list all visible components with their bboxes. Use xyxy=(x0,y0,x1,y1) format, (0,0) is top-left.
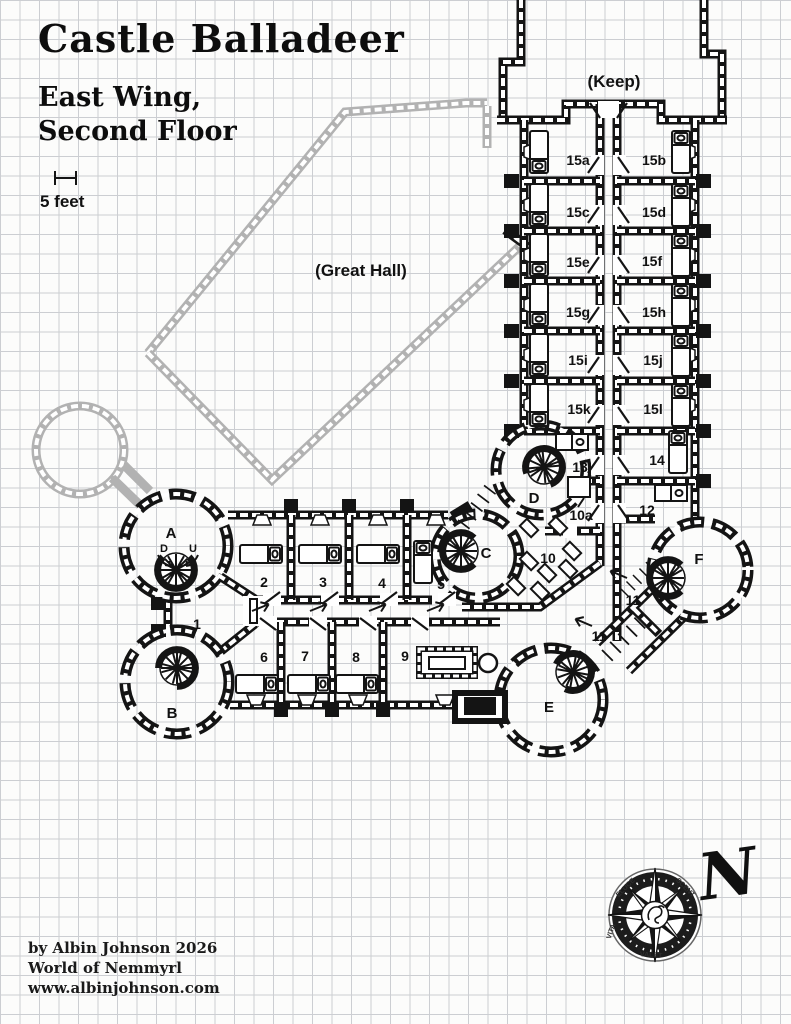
bed-icon-15b xyxy=(672,131,690,173)
tower-c xyxy=(435,514,519,598)
spiral-stair-icon-f xyxy=(650,560,685,597)
bed-icon-15h xyxy=(672,284,690,326)
dresser-icon-12 xyxy=(655,485,687,501)
credit-line2: World of Nemmyrl xyxy=(27,959,182,977)
keep-label: (Keep) xyxy=(588,72,641,91)
hearth-icon xyxy=(464,697,496,715)
castle-map: ELUCESCENTVITAVALET Castle Balladeer Eas… xyxy=(0,0,791,1024)
room-label-15c: 15c xyxy=(566,204,590,220)
spiral-stair-icon-c xyxy=(443,533,478,570)
bed-icon-15g xyxy=(530,284,548,326)
room-label-12: 12 xyxy=(639,502,655,518)
room-label-15d: 15d xyxy=(642,204,666,220)
room-label-15i: 15i xyxy=(568,352,587,368)
room-label-10: 10 xyxy=(540,550,556,566)
room-label-15l: 15l xyxy=(643,401,662,417)
bed-icon-15f xyxy=(672,234,690,276)
room-label-13: 13 xyxy=(572,459,588,475)
stair-mark-d: D xyxy=(160,543,168,555)
room-label-2: 2 xyxy=(260,574,268,590)
tower-label-d: D xyxy=(529,490,540,507)
bed-icon-8 xyxy=(336,675,378,693)
room-label-15j: 15j xyxy=(643,352,662,368)
bed-icon-2 xyxy=(240,545,282,563)
bed-icon-7 xyxy=(288,675,330,693)
subtitle-line2: Second Floor xyxy=(38,116,237,147)
bed-icon-5 xyxy=(414,541,432,583)
scale-bar xyxy=(55,171,76,185)
closet-10a-pointer xyxy=(578,498,584,507)
tower-a xyxy=(124,494,228,598)
bed-icon-15l xyxy=(672,384,690,426)
stairs-corridor11-lower xyxy=(602,618,645,661)
closet-10a xyxy=(568,477,590,497)
tower-label-a: A xyxy=(166,525,177,542)
subtitle-line1: East Wing, xyxy=(38,82,201,113)
page-title: Castle Balladeer xyxy=(38,16,405,61)
room-label-14: 14 xyxy=(649,452,665,468)
scale-label: 5 feet xyxy=(40,192,85,211)
room-label-15h: 15h xyxy=(642,304,666,320)
stair-mark-u: U xyxy=(189,543,197,555)
keep-right-tower-wall xyxy=(704,0,722,119)
castle-map-page: ELUCESCENTVITAVALET Castle Balladeer Eas… xyxy=(0,0,791,1024)
long-table-top xyxy=(429,657,465,669)
bed-icon-6 xyxy=(236,675,278,693)
tower-label-e: E xyxy=(544,699,554,716)
bed-icon-14 xyxy=(669,431,687,473)
room-label-3: 3 xyxy=(319,574,327,590)
bed-icon-4 xyxy=(357,545,399,563)
tower-f xyxy=(650,522,748,618)
room-label-11: 11 xyxy=(592,628,607,644)
room-label-15a: 15a xyxy=(566,152,590,168)
north-indicator: N xyxy=(692,833,765,916)
dresser-icon-13 xyxy=(556,434,588,450)
room-label-8: 8 xyxy=(352,649,360,665)
great-hall-label: (Great Hall) xyxy=(315,261,407,280)
compass-medallion xyxy=(642,902,669,929)
bed-icon-15i xyxy=(530,334,548,376)
room-label-5: 5 xyxy=(437,576,445,592)
bed-icon-15a xyxy=(530,131,548,173)
room-label-15b: 15b xyxy=(642,152,666,168)
room-label-15k: 15k xyxy=(567,401,591,417)
credit-line3: www.albinjohnson.com xyxy=(27,979,220,997)
room-label-4: 4 xyxy=(378,575,386,591)
credit-line1: by Albin Johnson 2026 xyxy=(28,939,217,957)
keep-left-tower-wall xyxy=(503,0,521,119)
bed-icon-15d xyxy=(672,184,690,226)
compass-rose: ELUCESCENTVITAVALET xyxy=(606,868,702,962)
room-label-9: 9 xyxy=(401,648,409,664)
room-label-1: 1 xyxy=(193,616,201,632)
tower-label-c: C xyxy=(481,545,492,562)
bed-icon-15j xyxy=(672,334,690,376)
stool-icon xyxy=(479,654,497,672)
room-label-15f: 15f xyxy=(642,253,663,269)
spiral-stair-icon-b xyxy=(152,642,203,693)
bed-icon-15c xyxy=(530,184,548,226)
room-label-15g: 15g xyxy=(566,304,590,320)
spiral-stair-icon-a xyxy=(158,553,195,588)
spiral-stair-icon-e xyxy=(551,648,597,695)
tower-label-b: B xyxy=(167,705,178,722)
tower-label-f: F xyxy=(694,551,703,568)
bed-icon-15k xyxy=(530,384,548,426)
room-label-6: 6 xyxy=(260,649,268,665)
bed-icon-3 xyxy=(299,545,341,563)
room-label-7: 7 xyxy=(301,648,309,664)
room-label-11: 11 xyxy=(626,592,641,608)
lower-floor-outlines xyxy=(36,103,523,505)
bed-icon-15e xyxy=(530,234,548,276)
room-label-10a: 10a xyxy=(569,507,593,523)
room-label-15e: 15e xyxy=(566,254,590,270)
